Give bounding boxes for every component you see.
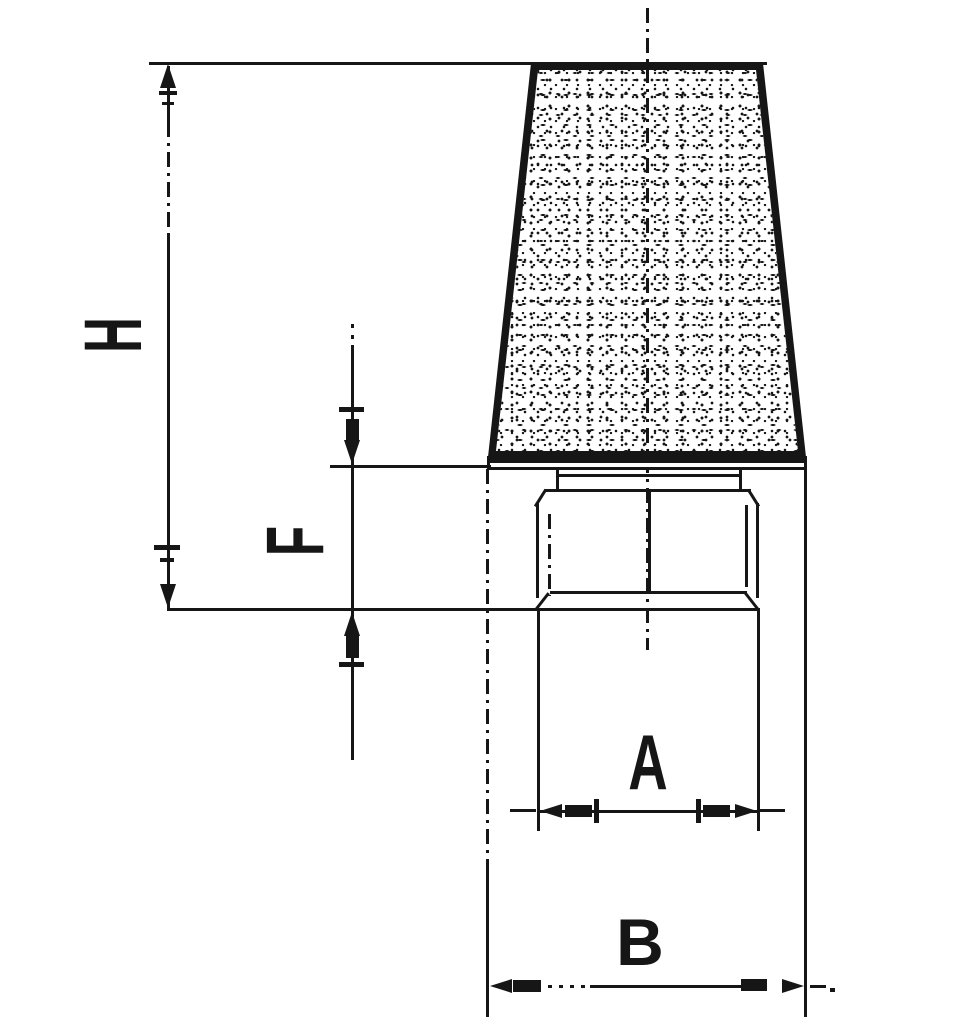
- a-right-stub: [759, 809, 785, 812]
- b-right-stub: [810, 985, 826, 988]
- neck-right-edge: [739, 470, 742, 491]
- hex-center-facet-line: [648, 492, 651, 594]
- hex-bottom-line: [550, 591, 747, 594]
- f-arrow-lower-tick: [339, 662, 364, 667]
- f-arrow-upper-tick: [339, 407, 364, 412]
- b-dimension-line-dots: [548, 985, 590, 988]
- dimension-label-f: F: [246, 511, 346, 571]
- h-dimension-line-main: [167, 235, 170, 608]
- h-arrow-down-tick: [154, 545, 180, 550]
- a-left-tail-bar: [594, 799, 599, 823]
- dimension-label-b: B: [590, 892, 690, 992]
- f-dimension-line-dots: [351, 324, 354, 344]
- h-arrow-down-tick2: [160, 558, 174, 562]
- hex-hidden-line: [548, 514, 551, 596]
- a-left-stub: [510, 809, 536, 812]
- base-flange: [487, 456, 807, 470]
- technical-drawing: H F A B: [0, 0, 974, 1024]
- f-arrow-down: [344, 440, 360, 464]
- b-left-tail-block: [513, 980, 541, 992]
- dimension-label-a: A: [613, 712, 683, 812]
- h-dimension-line-dashed: [167, 122, 170, 235]
- a-right-tail-block: [703, 805, 730, 817]
- b-right-extension: [804, 469, 807, 1017]
- hex-right-edge: [756, 503, 759, 598]
- a-arrow-right: [735, 804, 757, 818]
- thread-left-edge: [537, 610, 540, 831]
- b-arrow-left: [490, 979, 512, 993]
- f-upper-reference-line: [330, 465, 491, 468]
- f-arrow-up: [344, 612, 360, 636]
- h-arrow-up: [160, 64, 176, 88]
- h-arrow-up-tick: [159, 91, 177, 95]
- neck-top-line: [556, 474, 741, 477]
- b-right-stub-dot: [830, 988, 835, 992]
- h-arrow-down: [160, 584, 176, 608]
- hex-left-edge: [536, 503, 539, 598]
- a-left-tail-block: [565, 805, 592, 817]
- f-arrow-lower-body: [346, 634, 359, 658]
- neck-left-edge: [556, 470, 559, 491]
- bottom-reference-line: [167, 608, 760, 611]
- b-left-extension-solid: [486, 869, 489, 1017]
- hex-right-facet-line: [745, 505, 748, 587]
- b-left-extension-dashed: [486, 469, 489, 869]
- thread-right-edge: [757, 610, 760, 831]
- b-arrow-right: [782, 979, 804, 993]
- dimension-label-h: H: [64, 305, 164, 365]
- a-arrow-left: [540, 804, 562, 818]
- h-arrow-up-tick2: [162, 102, 174, 105]
- a-right-tail-bar: [696, 799, 701, 823]
- b-right-tail-block: [741, 979, 767, 991]
